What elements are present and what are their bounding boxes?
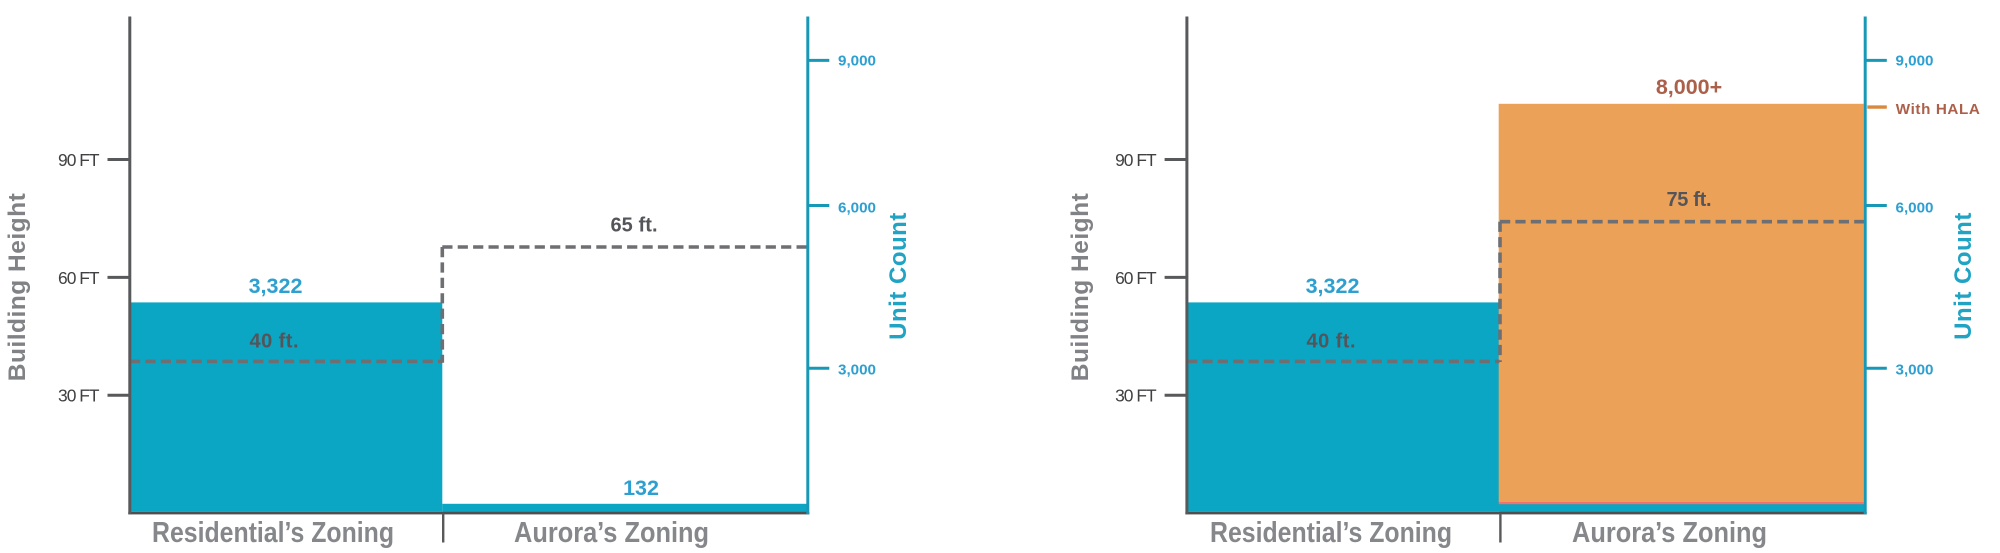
svg-text:With HALA: With HALA (1896, 101, 1980, 118)
svg-text:Aurora’s Zoning: Aurora’s Zoning (1572, 517, 1767, 549)
svg-text:3,322: 3,322 (249, 274, 303, 298)
svg-text:65 ft.: 65 ft. (611, 215, 658, 237)
svg-text:60 FT: 60 FT (1115, 268, 1157, 288)
svg-text:Unit Count: Unit Count (1950, 212, 1977, 340)
svg-text:30 FT: 30 FT (58, 386, 100, 406)
svg-text:30 FT: 30 FT (1115, 386, 1157, 406)
svg-text:90 FT: 90 FT (1115, 150, 1157, 170)
svg-text:90 FT: 90 FT (58, 150, 100, 170)
svg-text:8,000+: 8,000+ (1656, 75, 1722, 99)
svg-text:Residential’s Zoning: Residential’s Zoning (1210, 517, 1452, 549)
svg-text:9,000: 9,000 (1896, 53, 1934, 70)
svg-text:9,000: 9,000 (838, 53, 876, 70)
svg-text:6,000: 6,000 (1896, 200, 1934, 217)
svg-text:3,000: 3,000 (1896, 362, 1934, 379)
svg-text:60 FT: 60 FT (58, 268, 100, 288)
svg-text:40 ft.: 40 ft. (250, 330, 299, 352)
svg-text:Building Height: Building Height (4, 193, 31, 382)
svg-text:132: 132 (623, 476, 659, 500)
svg-text:Unit Count: Unit Count (885, 212, 912, 340)
svg-text:6,000: 6,000 (838, 200, 876, 217)
svg-text:3,000: 3,000 (838, 362, 876, 379)
svg-text:Aurora’s Zoning: Aurora’s Zoning (514, 517, 709, 549)
svg-text:Residential’s Zoning: Residential’s Zoning (152, 517, 394, 549)
svg-text:40 ft.: 40 ft. (1307, 330, 1356, 352)
svg-text:3,322: 3,322 (1306, 274, 1360, 298)
svg-text:75 ft.: 75 ft. (1667, 189, 1712, 211)
svg-text:Building Height: Building Height (1067, 193, 1094, 382)
